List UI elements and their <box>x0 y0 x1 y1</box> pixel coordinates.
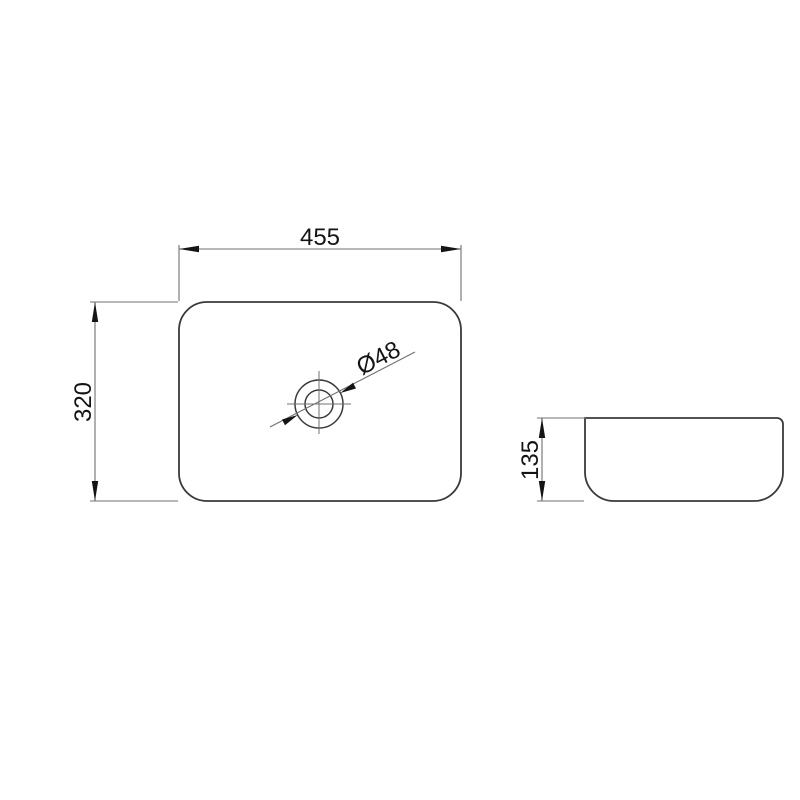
height-dimension-text: 135 <box>517 440 544 480</box>
depth-dimension-text: 320 <box>70 382 97 422</box>
side-view <box>585 418 783 501</box>
depth-arrow-top <box>92 302 98 322</box>
height-arrow-top <box>539 418 545 438</box>
width-arrow-left <box>179 246 199 252</box>
drawing-sheet: 455 320 Ø48 135 <box>0 0 800 800</box>
width-arrow-right <box>441 246 461 252</box>
width-dimension-text: 455 <box>300 224 340 251</box>
depth-dimension: 320 <box>70 302 178 501</box>
drain-arrow-upper-right <box>340 383 356 393</box>
basin-side-outline <box>585 418 783 501</box>
drain-dimension-text: Ø48 <box>352 336 405 381</box>
height-arrow-bottom <box>539 481 545 501</box>
depth-arrow-bottom <box>92 481 98 501</box>
technical-drawing: 455 320 Ø48 135 <box>0 0 800 800</box>
drain-diameter-dimension: Ø48 <box>270 336 415 427</box>
width-dimension: 455 <box>179 224 461 301</box>
height-dimension: 135 <box>517 418 586 501</box>
